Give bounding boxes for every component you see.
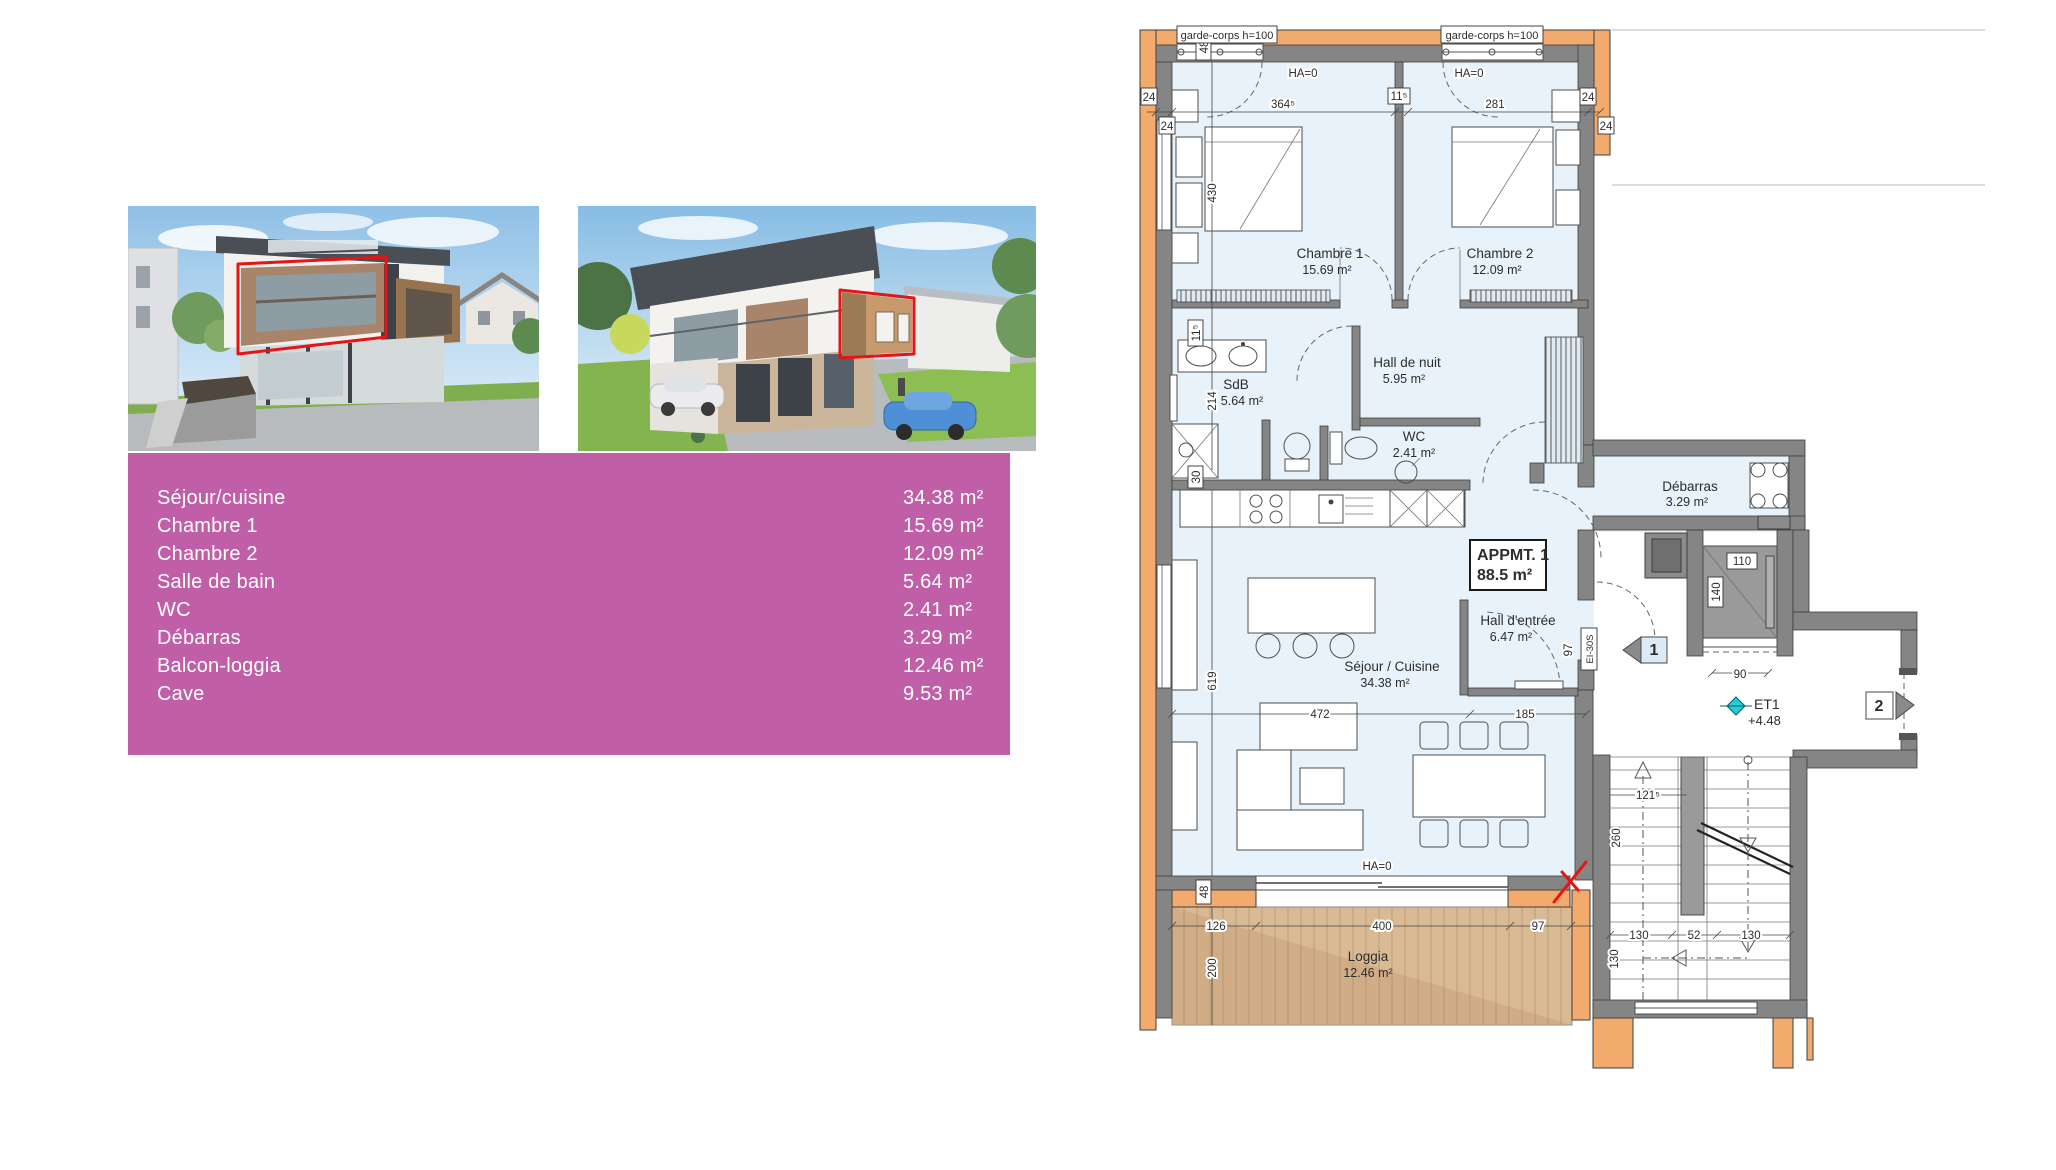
dim-121-5: 121⁵ <box>1636 790 1660 802</box>
door-2-arrow <box>1896 692 1914 719</box>
brochure-page: Séjour/cuisine34.38 m² Chambre 115.69 m²… <box>0 0 2056 1170</box>
dim-472: 472 <box>1310 709 1329 721</box>
ha0-label: HA=0 <box>1288 68 1317 80</box>
dim-364-5: 364⁵ <box>1271 99 1295 111</box>
room-label-loggia: Loggia <box>1348 949 1389 964</box>
dim-30: 30 <box>1191 471 1203 484</box>
dim-130: 130 <box>1629 930 1648 942</box>
room-area-hall-entree: 6.47 m² <box>1490 630 1532 644</box>
garde-corps-label: garde-corps h=100 <box>1181 30 1274 42</box>
room-area-chambre2: 12.09 m² <box>1472 263 1521 277</box>
dim-11-5: 11⁵ <box>1191 324 1203 341</box>
dim-126: 126 <box>1206 921 1225 933</box>
dim-619: 619 <box>1207 671 1219 690</box>
door-1-label: 1 <box>1650 642 1659 659</box>
dim-214: 214 <box>1207 391 1219 411</box>
room-label-hall-nuit: Hall de nuit <box>1373 355 1441 370</box>
dim-24: 24 <box>1600 121 1613 133</box>
room-area-wc: 2.41 m² <box>1393 446 1435 460</box>
dim-130: 130 <box>1609 949 1621 968</box>
room-area-sejour: 34.38 m² <box>1360 676 1409 690</box>
room-label-hall-entree: Hall d'entrée <box>1480 613 1555 628</box>
room-label-chambre2: Chambre 2 <box>1467 246 1534 261</box>
garde-corps-label: garde-corps h=100 <box>1446 30 1539 42</box>
dim-97: 97 <box>1532 921 1545 933</box>
dim-24: 24 <box>1161 121 1174 133</box>
room-area-chambre1: 15.69 m² <box>1302 263 1351 277</box>
room-area-hall-nuit: 5.95 m² <box>1383 372 1425 386</box>
dim-48: 48 <box>1199 886 1211 899</box>
dim-140: 140 <box>1711 582 1723 601</box>
ha0-label: HA=0 <box>1454 68 1483 80</box>
level-marker-et1: ET1 +4.48 <box>1720 696 1781 728</box>
dim-185: 185 <box>1515 709 1534 721</box>
room-label-debarras: Débarras <box>1662 479 1718 494</box>
dim-260: 260 <box>1611 828 1623 847</box>
et1-label: ET1 <box>1754 696 1780 712</box>
room-area-debarras: 3.29 m² <box>1666 495 1708 509</box>
ha0-label: HA=0 <box>1362 861 1391 873</box>
dim-24: 24 <box>1143 92 1156 104</box>
dim-110: 110 <box>1733 556 1751 568</box>
room-label-chambre1: Chambre 1 <box>1297 246 1364 261</box>
room-label-sdb: SdB <box>1223 377 1249 392</box>
dim-430: 430 <box>1207 183 1219 202</box>
dim-11-5: 11⁵ <box>1391 91 1408 103</box>
level-value: +4.48 <box>1748 713 1781 728</box>
dim-52: 52 <box>1688 930 1701 942</box>
dim-90: 90 <box>1734 669 1747 681</box>
room-label-sejour: Séjour / Cuisine <box>1344 659 1439 674</box>
door-2-label: 2 <box>1875 698 1884 715</box>
apartment-area: 88.5 m² <box>1477 567 1532 584</box>
apartment-number: APPMT. 1 <box>1477 547 1549 564</box>
dim-24: 24 <box>1582 92 1595 104</box>
room-area-sdb: 5.64 m² <box>1221 394 1263 408</box>
fire-door-label: EI-30S <box>1585 634 1596 663</box>
neighbour-outline <box>1612 30 1985 185</box>
floor-plan: 24 24 24 24 48 364⁵ 11⁵ 281 430 11⁵ 214 … <box>0 0 2056 1170</box>
door-1-arrow <box>1623 637 1641 663</box>
room-area-loggia: 12.46 m² <box>1343 966 1392 980</box>
dim-281: 281 <box>1485 99 1504 111</box>
dim-400: 400 <box>1372 921 1391 933</box>
room-label-wc: WC <box>1403 429 1426 444</box>
dim-97: 97 <box>1563 644 1575 657</box>
dim-130: 130 <box>1741 930 1760 942</box>
dim-200: 200 <box>1207 958 1219 977</box>
